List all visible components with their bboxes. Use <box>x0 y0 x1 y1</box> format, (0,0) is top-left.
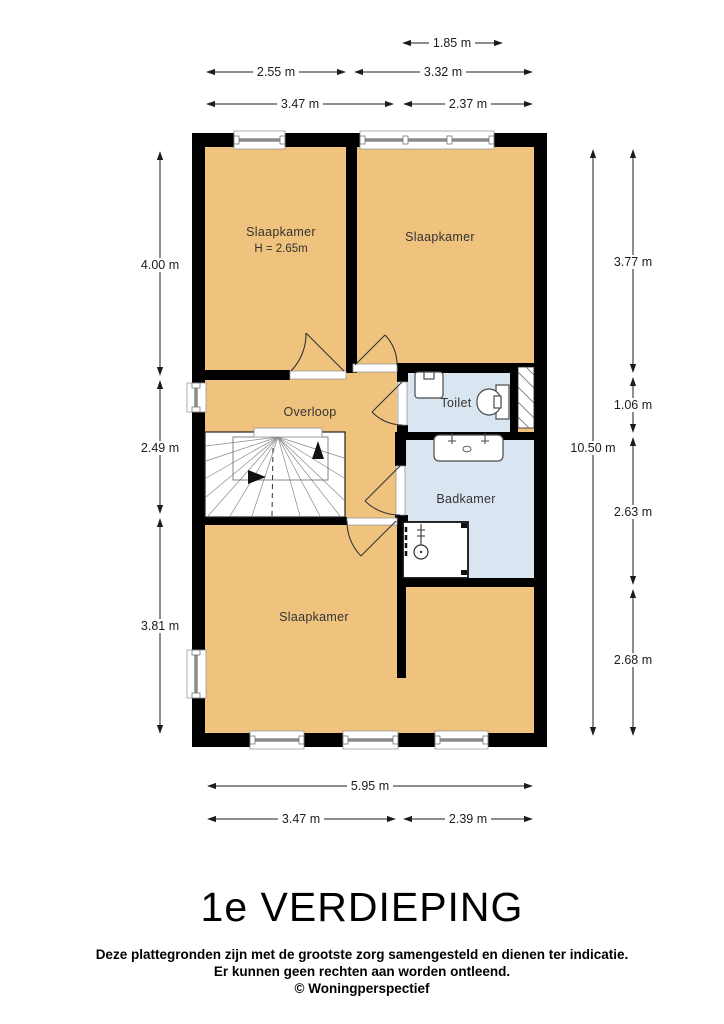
room-label-slaapkamer-top-left: Slaapkamer <box>246 225 316 239</box>
dim-bottom-right: 2.39 m <box>449 812 487 826</box>
dim-left-bottom: 3.81 m <box>141 619 179 633</box>
toilet-sink-icon <box>415 372 443 398</box>
window-top-right <box>360 131 494 149</box>
wall-toilet-west-upper <box>397 363 408 382</box>
threshold-bedroom2 <box>353 364 397 372</box>
disclaimer-line-1: Deze plattegronden zijn met de grootste … <box>0 946 724 963</box>
dim-right-bedroom: 3.77 m <box>614 255 652 269</box>
page: { "page": { "title": "1e VERDIEPING", "d… <box>0 0 724 1024</box>
window-top-left <box>234 131 285 149</box>
dim-right-total: 10.50 m <box>570 441 615 455</box>
shower-icon <box>403 522 468 578</box>
wall-toilet-niche <box>510 363 518 432</box>
niche-hatched <box>518 367 534 428</box>
threshold-bedroom3 <box>347 518 397 525</box>
washbasin-icon <box>434 433 503 461</box>
dim-left-top: 4.00 m <box>141 258 179 272</box>
wall-toilet-west-lower <box>397 425 408 440</box>
dim-top-left-room: 2.55 m <box>257 65 295 79</box>
dim-right-toilet: 1.06 m <box>614 398 652 412</box>
window-bottom-3 <box>435 731 488 749</box>
threshold-toilet <box>398 382 407 425</box>
floorplan-svg: Slaapkamer H = 2.65m Slaapkamer Overloop… <box>0 0 724 1024</box>
dim-bottom-left: 3.47 m <box>282 812 320 826</box>
room-label-slaapkamer-top-right: Slaapkamer <box>405 230 475 244</box>
room-height-note: H = 2.65m <box>254 243 307 255</box>
disclaimer-line-2: Er kunnen geen rechten aan worden ontlee… <box>0 963 724 980</box>
wall-badkamer-west-upper <box>395 440 406 466</box>
dim-left-middle: 2.49 m <box>141 441 179 455</box>
wall-overloop-south <box>205 517 347 525</box>
threshold-badkamer <box>396 466 405 515</box>
room-label-badkamer: Badkamer <box>436 492 495 506</box>
room-label-toilet: Toilet <box>441 396 472 410</box>
window-left-overloop <box>187 383 206 412</box>
window-left-bedroom <box>187 650 206 698</box>
dim-top-right-room: 3.32 m <box>424 65 462 79</box>
window-bottom-1 <box>250 731 304 749</box>
dim-bottom-total: 5.95 m <box>351 779 389 793</box>
dim-right-badkamer: 2.63 m <box>614 505 652 519</box>
wall-exterior-right <box>534 133 547 747</box>
dim-top-window: 1.85 m <box>433 36 471 50</box>
stair-landing-edge <box>254 428 322 437</box>
dim-right-bottom: 2.68 m <box>614 653 652 667</box>
threshold-bedroom1 <box>290 371 346 379</box>
disclaimer: Deze plattegronden zijn met de grootste … <box>0 946 724 997</box>
copyright: © Woningperspectief <box>0 980 724 997</box>
staircase <box>205 428 345 517</box>
dim-top-span-right: 2.37 m <box>449 97 487 111</box>
room-label-slaapkamer-bottom: Slaapkamer <box>279 610 349 624</box>
wall-bedroom-divider <box>346 147 357 373</box>
room-label-overloop: Overloop <box>283 405 336 419</box>
wall-badkamer-south <box>397 578 534 587</box>
dim-top-span-left: 3.47 m <box>281 97 319 111</box>
wall-bedroom1-south <box>205 370 290 380</box>
window-bottom-2 <box>343 731 398 749</box>
page-title: 1e VERDIEPING <box>0 884 724 931</box>
